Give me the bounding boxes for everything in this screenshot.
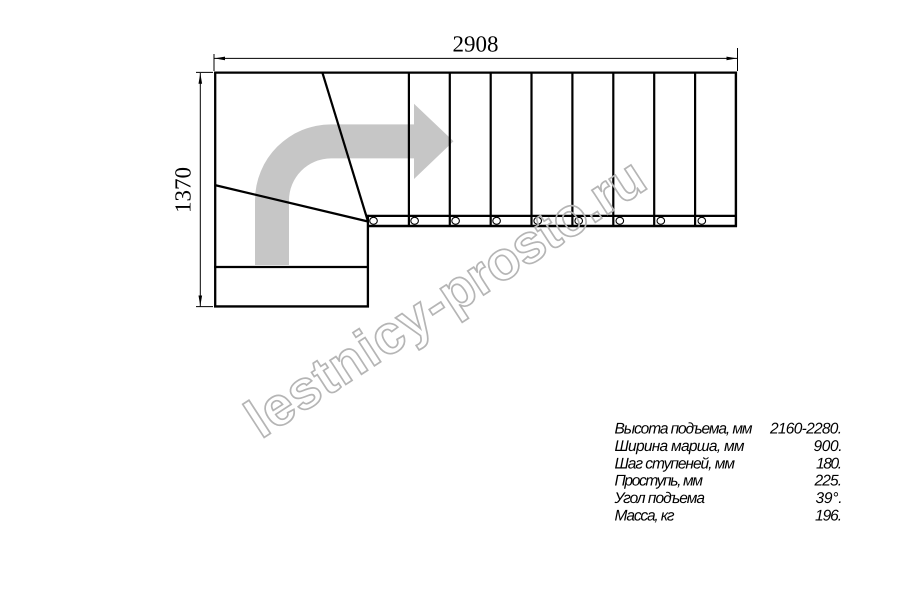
svg-text:Проступь, мм: Проступь, мм	[615, 473, 704, 490]
svg-text:1370: 1370	[171, 167, 196, 213]
svg-text:Масса, кг: Масса, кг	[615, 507, 675, 524]
svg-text:196.: 196.	[815, 507, 842, 524]
svg-text:Высота подъема, мм: Высота подъема, мм	[615, 421, 753, 438]
svg-text:39°.: 39°.	[816, 490, 843, 507]
svg-text:Шаг ступеней, мм: Шаг ступеней, мм	[615, 455, 736, 472]
svg-text:225.: 225.	[814, 473, 843, 490]
svg-text:Ширина марша, мм: Ширина марша, мм	[615, 438, 745, 455]
svg-text:2160-2280.: 2160-2280.	[769, 421, 842, 438]
svg-text:180.: 180.	[816, 455, 842, 472]
svg-text:900.: 900.	[814, 438, 843, 455]
svg-text:Угол подъема: Угол подъема	[614, 490, 706, 507]
svg-text:2908: 2908	[453, 32, 499, 57]
